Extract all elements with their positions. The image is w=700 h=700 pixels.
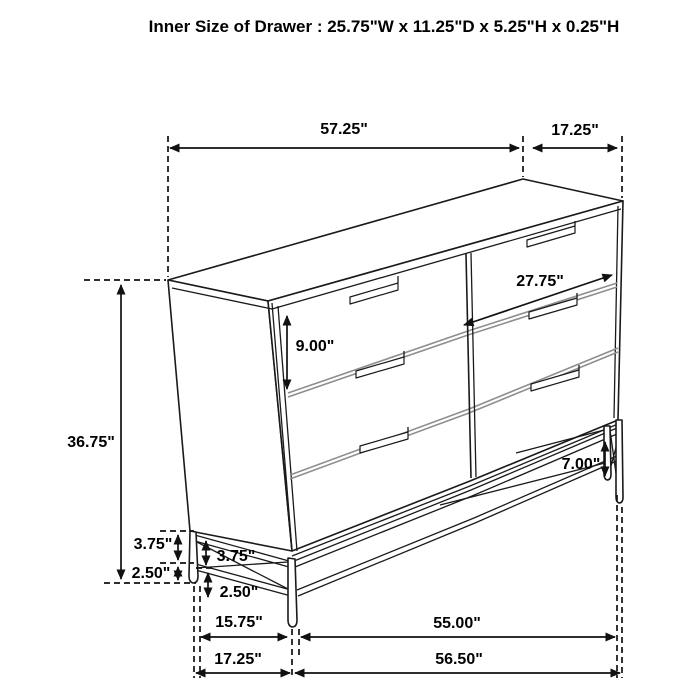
- dim-height-label: 36.75": [67, 434, 115, 452]
- dim-frame-lower-inner-label: 2.50": [220, 584, 259, 602]
- dim-base-inner-depth-label: 15.75": [215, 614, 263, 632]
- dim-base-outer-depth-label: 17.25": [214, 651, 262, 669]
- leg-front-right: [616, 420, 623, 503]
- leg-front-left: [288, 558, 297, 627]
- diagram-canvas: Inner Size of Drawer : 25.75"W x 11.25"D…: [0, 0, 700, 700]
- dim-frame-lower-outer-label: 2.50": [132, 565, 171, 583]
- dim-base-inner-width-label: 55.00": [433, 615, 481, 633]
- dim-drawer-height-label: 9.00": [296, 338, 335, 356]
- leg-rear-left: [189, 531, 198, 583]
- diagram-title: Inner Size of Drawer : 25.75"W x 11.25"D…: [149, 17, 620, 37]
- dim-frame-upper-inner-label: 3.75": [217, 548, 256, 566]
- dim-drawer-width-label: 27.75": [516, 273, 564, 291]
- dim-frame-upper-outer-label: 3.75": [134, 536, 173, 554]
- dresser-dimension-diagram: [0, 0, 700, 700]
- dim-base-outer-width-label: 56.50": [435, 651, 483, 669]
- dim-top-depth-label: 17.25": [551, 122, 599, 140]
- dim-leg-height-label: 7.00": [562, 456, 601, 474]
- dim-top-width-label: 57.25": [320, 121, 368, 139]
